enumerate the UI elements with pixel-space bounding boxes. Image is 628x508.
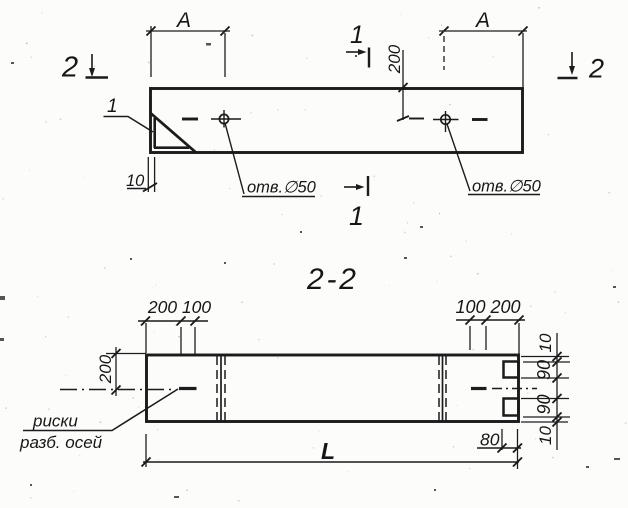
svg-text:1: 1 <box>350 21 364 49</box>
svg-text:200: 200 <box>147 297 177 317</box>
svg-text:200: 200 <box>489 297 520 317</box>
svg-text:отв.∅50: отв.∅50 <box>472 178 542 196</box>
svg-text:2-2: 2-2 <box>306 263 359 296</box>
svg-text:80: 80 <box>480 430 500 450</box>
svg-text:A: A <box>175 9 191 32</box>
svg-text:90: 90 <box>534 360 554 380</box>
svg-text:2: 2 <box>588 54 604 84</box>
svg-text:1: 1 <box>107 96 118 117</box>
svg-text:100: 100 <box>182 297 211 317</box>
svg-text:A: A <box>474 9 490 32</box>
svg-text:10: 10 <box>536 333 555 352</box>
svg-text:1: 1 <box>349 201 364 231</box>
svg-text:10: 10 <box>536 426 555 445</box>
svg-text:2: 2 <box>61 52 78 84</box>
svg-text:разб. осей: разб. осей <box>19 433 103 452</box>
svg-text:риски: риски <box>32 412 78 431</box>
svg-text:отв.∅50: отв.∅50 <box>247 179 317 197</box>
svg-text:200: 200 <box>96 354 115 384</box>
svg-text:100: 100 <box>455 297 485 317</box>
svg-text:10: 10 <box>126 172 145 190</box>
svg-text:90: 90 <box>534 394 554 414</box>
svg-text:L: L <box>321 438 335 464</box>
svg-text:200: 200 <box>385 44 404 74</box>
